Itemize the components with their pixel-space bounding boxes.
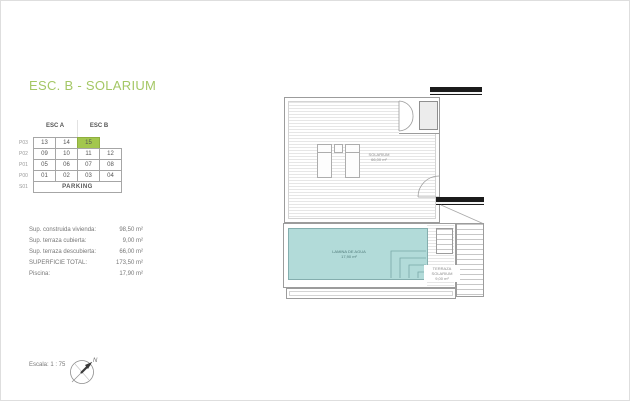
measurement-value: 98,50 m² xyxy=(119,227,143,233)
table-row-s01: S01 PARKING xyxy=(19,181,122,193)
planter-inner-line xyxy=(289,291,453,296)
lounger-backrest xyxy=(318,145,331,153)
measurement-label: Piscina: xyxy=(29,271,50,277)
measurement-row-total: SUPERFICIE TOTAL: 173,50 m² xyxy=(29,260,143,266)
parking-cell: PARKING xyxy=(33,181,122,193)
planter-strip xyxy=(286,288,456,299)
measurement-row: Sup. terraza cubierta: 9,00 m² xyxy=(29,238,143,244)
side-table xyxy=(334,144,343,153)
small-staircase xyxy=(436,228,453,254)
diagonal-ramp-line xyxy=(440,204,485,225)
terrace-label: TERRAZA SOLARIUM 9,00 m² xyxy=(424,265,460,282)
plan-sheet-page: ESC. B - SOLARIUM ESC A ESC B P03 13 14 … xyxy=(0,0,630,401)
sun-lounger xyxy=(317,144,332,178)
pool-label-area: 17,90 m² xyxy=(324,254,374,259)
measurement-row: Sup. terraza descubierta: 66,00 m² xyxy=(29,249,143,255)
solarium-label: SOLARIUM 66,00 m² xyxy=(357,152,401,162)
measurement-label: Sup. terraza descubierta: xyxy=(29,249,96,255)
pergola-beam-top xyxy=(430,87,482,95)
measurement-value: 9,00 m² xyxy=(123,238,143,244)
terrace-label-name: TERRAZA SOLARIUM xyxy=(424,266,460,276)
measurement-row-pool: Piscina: 17,90 m² xyxy=(29,271,143,277)
col-group-esc-a: ESC A xyxy=(33,123,77,129)
pool-label: LAMINA DE AGUA 17,90 m² xyxy=(324,249,374,259)
measurement-label: Sup. construida vivienda: xyxy=(29,227,96,233)
door-arc-icon xyxy=(417,175,440,198)
page-title: ESC. B - SOLARIUM xyxy=(29,78,156,93)
main-staircase xyxy=(456,223,484,297)
measurement-row: Sup. construida vivienda: 98,50 m² xyxy=(29,227,143,233)
solarium-label-area: 66,00 m² xyxy=(357,157,401,162)
vestibule-wall xyxy=(399,133,440,134)
row-label: S01 xyxy=(19,181,33,193)
swimming-pool: LAMINA DE AGUA 17,90 m² xyxy=(288,228,428,280)
double-door-icon xyxy=(397,100,419,132)
measurement-value: 173,50 m² xyxy=(116,260,143,266)
stair-bulkhead xyxy=(419,101,438,130)
measurement-value: 66,00 m² xyxy=(119,249,143,255)
measurement-label: SUPERFICIE TOTAL: xyxy=(29,260,87,266)
header-separator xyxy=(77,120,78,137)
scale-label: Escala: 1 : 75 xyxy=(29,362,65,368)
measurement-value: 17,90 m² xyxy=(119,271,143,277)
measurement-label: Sup. terraza cubierta: xyxy=(29,238,86,244)
terrace-label-area: 9,00 m² xyxy=(424,276,460,281)
surface-measurements: Sup. construida vivienda: 98,50 m² Sup. … xyxy=(29,227,143,282)
compass-north-letter: N xyxy=(93,358,98,364)
north-compass-icon: N xyxy=(65,353,103,389)
units-table-header: ESC A ESC B xyxy=(19,120,121,137)
units-table: ESC A ESC B P03 13 14 15 P02 09 10 11 12… xyxy=(19,120,122,193)
col-group-esc-b: ESC B xyxy=(77,123,121,129)
